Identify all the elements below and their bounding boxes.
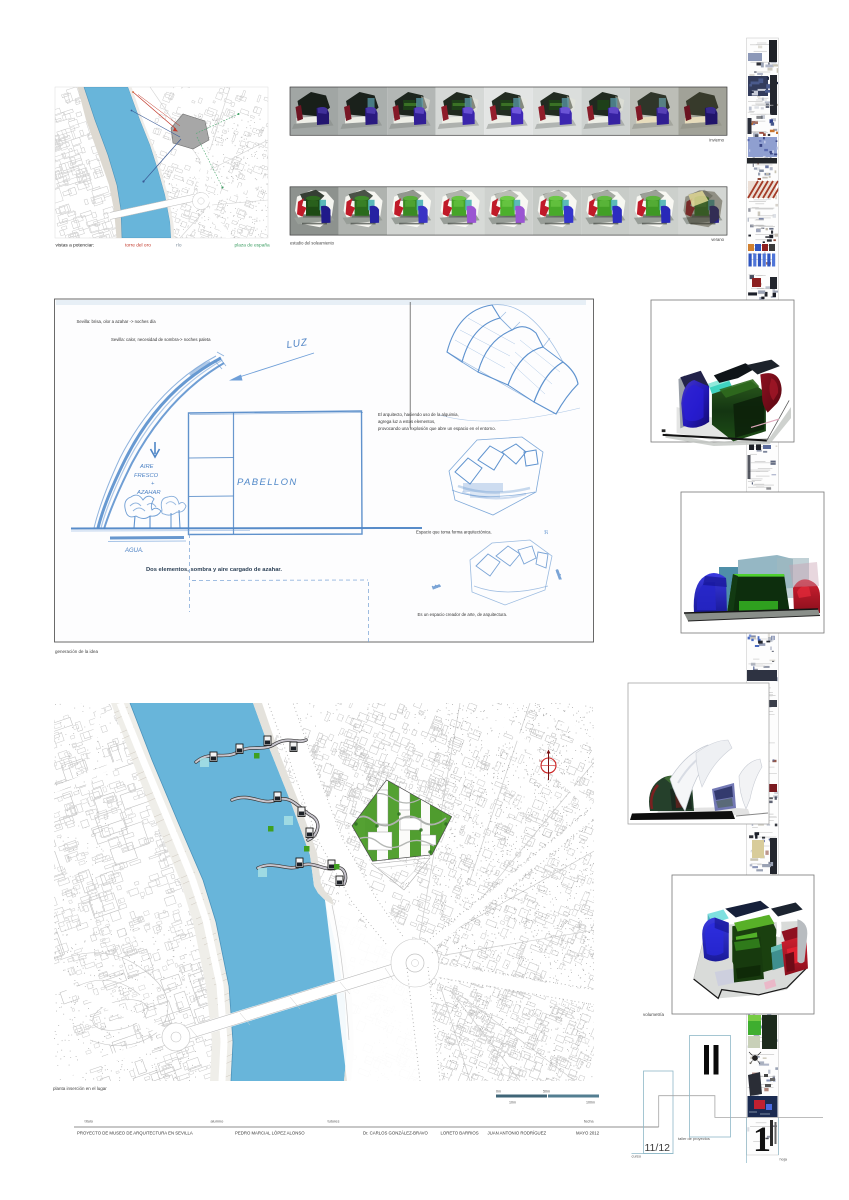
svg-text:AIRE: AIRE (139, 464, 154, 470)
svg-text:LORETO BARRIOS: LORETO BARRIOS (441, 1131, 479, 1136)
svg-text:10m: 10m (509, 1101, 516, 1105)
svg-text:taller de proyectos: taller de proyectos (678, 1136, 710, 1141)
svg-text:estudio del soleamiento: estudio del soleamiento (290, 241, 335, 246)
svg-text:planta inserción en el lugar: planta inserción en el lugar (53, 1086, 107, 1091)
svg-text:Sevilla: brisa, olor a azahar: Sevilla: brisa, olor a azahar -> noches … (77, 319, 157, 324)
svg-text:título: título (85, 1119, 93, 1124)
svg-text:100m: 100m (586, 1101, 595, 1105)
svg-text:torre del oro: torre del oro (125, 243, 151, 249)
svg-text:invierno: invierno (709, 138, 724, 143)
svg-text:Sevilla: calor, necesidad de s: Sevilla: calor, necesidad de sombra-> no… (111, 337, 211, 342)
svg-text:11/12: 11/12 (645, 1142, 671, 1154)
svg-text:agrega luz a estos elementos,: agrega luz a estos elementos, (378, 419, 435, 424)
svg-text:PEDRO MARCIAL LÓPEZ ALONSO: PEDRO MARCIAL LÓPEZ ALONSO (235, 1131, 305, 1136)
svg-text:volumetría: volumetría (643, 1012, 665, 1017)
svg-text:1: 1 (753, 1119, 771, 1159)
svg-text:0m: 0m (496, 1090, 501, 1094)
svg-text:50m: 50m (543, 1090, 550, 1094)
svg-text:PABELLON: PABELLON (237, 477, 298, 488)
svg-text:JUAN ANTONIO RODRÍGUEZ: JUAN ANTONIO RODRÍGUEZ (488, 1131, 547, 1136)
svg-text:plaza de españa: plaza de españa (235, 243, 271, 249)
svg-text:vistas a potenciar:: vistas a potenciar: (56, 243, 95, 249)
svg-text:generación de la idea: generación de la idea (55, 649, 99, 654)
svg-text:provocando una explosión que: provocando una explosión que abre un esp… (378, 426, 496, 431)
svg-text:PROYECTO DE MUSEO DE ARQUITECT: PROYECTO DE MUSEO DE ARQUITECTURA EN SEV… (77, 1131, 193, 1136)
svg-text:Es un espacio creador de arte,: Es un espacio creador de arte, de arquit… (418, 612, 508, 617)
svg-text:verano: verano (711, 237, 724, 242)
svg-text:AGUA.: AGUA. (124, 548, 144, 554)
svg-text:tutores: tutores (328, 1119, 340, 1124)
svg-text:Dos elementos, sombra y aire c: Dos elementos, sombra y aire cargado de … (146, 567, 282, 573)
svg-text:alumno: alumno (211, 1119, 224, 1124)
svg-text:AZAHAR: AZAHAR (136, 490, 161, 496)
svg-text:Espacio que toma forma arquite: Espacio que toma forma arquitectónica. (416, 530, 492, 535)
svg-text:río: río (176, 243, 182, 249)
svg-text:MAYO 2012: MAYO 2012 (576, 1131, 600, 1136)
svg-text:hoja: hoja (780, 1157, 788, 1162)
svg-text:El arquitecto, haciendo uso de: El arquitecto, haciendo uso de la alquim… (378, 412, 459, 417)
svg-text:fecha: fecha (584, 1119, 594, 1124)
svg-text:FRESCO: FRESCO (134, 473, 159, 479)
svg-text:Dr. CARLOS GONZÁLEZ-BRAVO: Dr. CARLOS GONZÁLEZ-BRAVO (363, 1131, 429, 1136)
svg-text:curso: curso (632, 1154, 642, 1159)
